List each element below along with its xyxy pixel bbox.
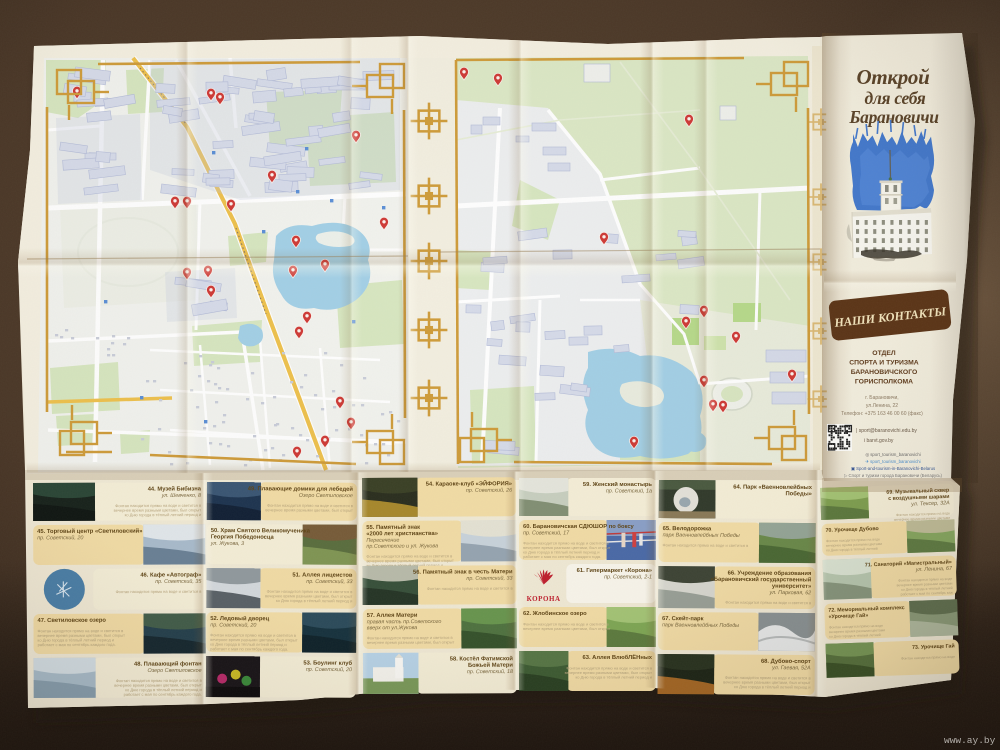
svg-text:www.ay.by: www.ay.by	[944, 735, 996, 746]
